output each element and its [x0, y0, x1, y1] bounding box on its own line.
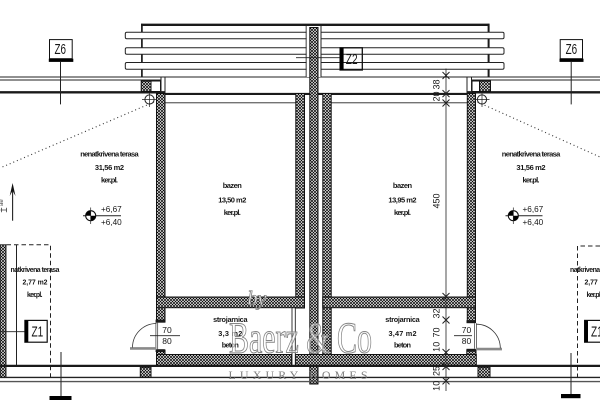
svg-text:Z6: Z6 [566, 42, 578, 58]
svg-text:Z6: Z6 [55, 42, 67, 58]
svg-text:ker.pl.: ker.pl. [394, 208, 411, 217]
svg-text:2,77 m2: 2,77 m2 [23, 279, 48, 286]
svg-text:beton: beton [394, 340, 411, 349]
svg-text:natkrivena terasa: natkrivena terasa [11, 267, 60, 274]
svg-text:Z1: Z1 [591, 324, 600, 340]
svg-text:bazen: bazen [223, 181, 243, 190]
svg-text:nenatkrivena terasa: nenatkrivena terasa [80, 150, 139, 159]
svg-text:80: 80 [462, 336, 472, 346]
svg-text:13,95 m2: 13,95 m2 [388, 195, 416, 204]
svg-text:+6,40: +6,40 [523, 218, 544, 227]
svg-text:31,56 m2: 31,56 m2 [516, 163, 545, 172]
svg-text:3,47 m2: 3,47 m2 [389, 329, 417, 338]
svg-text:bazen: bazen [393, 181, 413, 190]
svg-text:10: 10 [432, 342, 442, 352]
svg-text:Z1: Z1 [32, 324, 44, 340]
svg-text:ae: ae [0, 199, 5, 206]
svg-text:LUXURY HOMES: LUXURY HOMES [229, 368, 371, 382]
svg-text:strojarnica: strojarnica [385, 315, 420, 324]
svg-text:ker.pl.: ker.pl. [224, 208, 241, 217]
svg-text:ker.pl.: ker.pl. [101, 175, 118, 184]
svg-text:2,77 m2: 2,77 m2 [585, 279, 600, 286]
svg-text:ker.pl.: ker.pl. [587, 292, 600, 299]
svg-text:natkrivena terasa: natkrivena terasa [570, 267, 600, 274]
svg-text:+6,67: +6,67 [523, 205, 544, 214]
svg-text:ker.pl.: ker.pl. [523, 175, 540, 184]
svg-text:+6,40: +6,40 [101, 218, 122, 227]
svg-text:Z2: Z2 [346, 52, 358, 68]
svg-text:31,56 m2: 31,56 m2 [95, 163, 124, 172]
svg-text:70: 70 [432, 327, 442, 337]
svg-text:38: 38 [432, 79, 442, 89]
svg-text:13,50 m2: 13,50 m2 [218, 195, 246, 204]
svg-text:by: by [248, 288, 267, 310]
svg-text:32: 32 [432, 308, 442, 318]
svg-text:nenatkrivena terasa: nenatkrivena terasa [502, 150, 561, 159]
svg-text:80: 80 [162, 336, 172, 346]
svg-text:20: 20 [432, 91, 442, 101]
svg-text:Baerz & Co: Baerz & Co [229, 313, 372, 363]
svg-text:10: 10 [432, 381, 442, 391]
svg-text:70: 70 [162, 325, 172, 335]
svg-text:ker.pl.: ker.pl. [27, 292, 43, 299]
svg-text:70: 70 [462, 325, 472, 335]
svg-text:450: 450 [432, 193, 442, 208]
svg-text:+6,67: +6,67 [101, 205, 122, 214]
svg-text:25: 25 [432, 366, 442, 376]
